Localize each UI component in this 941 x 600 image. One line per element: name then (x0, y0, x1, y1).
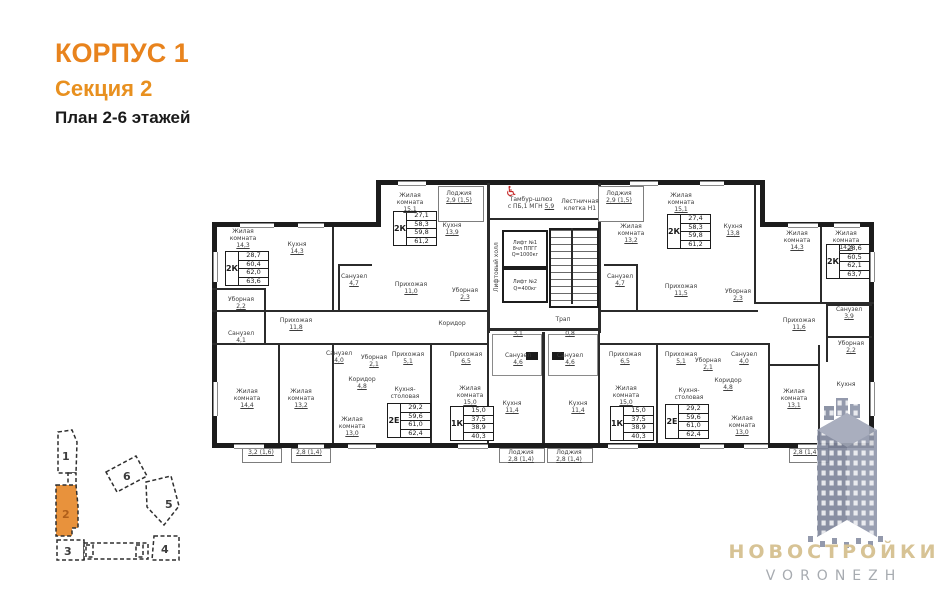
logo-building-icon (740, 398, 930, 548)
room-name: Санузел (720, 351, 768, 358)
room-name: Жилая комната (773, 230, 821, 244)
wall (604, 264, 638, 266)
minimap-section-3[interactable]: 3 (57, 540, 84, 560)
room-area: 14,3 (790, 244, 803, 251)
room-label: Жилая комната15,1 (657, 192, 705, 214)
minimap-section-number: 5 (165, 498, 173, 511)
room-name: Уборная (217, 296, 265, 303)
room-label: Коридор4,8 (338, 376, 386, 390)
room-name: Прихожая (601, 351, 649, 358)
room-area: 2,2 (236, 303, 246, 310)
minimap-connector (68, 473, 76, 486)
room-area: 2,2 (846, 347, 856, 354)
apartment-table: 2К 28,7 60,4 62,0 63,6 (225, 251, 269, 286)
room-label: Кухня13,9 (428, 222, 476, 236)
room-area: 15,0 (463, 399, 476, 406)
room-label: Санузел4,7 (596, 273, 644, 287)
room-name: Уборная (714, 288, 762, 295)
room-area: 11,4 (571, 407, 584, 414)
room-area: 4,7 (615, 280, 625, 287)
room-name: Кухня-столовая (381, 386, 429, 400)
wall (212, 288, 266, 290)
window (870, 252, 875, 282)
room-area: 5,1 (403, 358, 413, 365)
page: КОРПУС 1 Секция 2 План 2-6 этажей (0, 0, 941, 600)
room-area: 15,1 (674, 206, 687, 213)
elevator-2: Лифт №2 Q=400кг (502, 268, 548, 303)
wall (760, 180, 765, 227)
window (630, 181, 658, 186)
room-name: Санузел (546, 352, 594, 359)
room-area: 4,6 (565, 359, 575, 366)
minimap-section-1[interactable]: 1 (58, 430, 77, 473)
elevator-label: Q=1000кг (512, 252, 539, 258)
room-label: Санузел3,9 (825, 306, 873, 320)
room-area: 2,8 (1,4) (556, 456, 582, 463)
room-label: Коридор (428, 320, 476, 334)
window (608, 444, 638, 449)
room-label: Жилая комната14,3 (822, 230, 870, 252)
apartment-type: 2К (394, 212, 407, 245)
window (398, 181, 426, 186)
room-label: Лоджия2,9 (1,5) (595, 190, 643, 204)
drain-text: Трап (535, 316, 591, 323)
room-label: Прихожая5,1 (384, 351, 432, 365)
room-area: 4,0 (334, 357, 344, 364)
room-name: Кухня (488, 400, 536, 407)
room-area: 2,9 (1,5) (606, 197, 632, 204)
apartment-area: 40,3 (624, 433, 653, 441)
minimap-strip-core (136, 545, 143, 557)
staircase (549, 228, 599, 308)
apartment-area: 63,7 (840, 271, 869, 279)
room-label: Уборная2,3 (714, 288, 762, 302)
room-name: Кухня (709, 223, 757, 230)
room-name: Уборная (827, 340, 875, 347)
minimap-section-6[interactable]: 6 (106, 456, 147, 492)
apartment-area: 63,6 (239, 278, 268, 286)
room-label: Прихожая6,5 (442, 351, 490, 365)
minimap-section-number: 3 (64, 545, 72, 558)
room-area: 14,3 (839, 244, 852, 251)
apartment-table: 2К 27,4 58,3 59,8 61,2 (667, 214, 711, 249)
room-area: 14,3 (290, 248, 303, 255)
room-area: 14,3 (236, 242, 249, 249)
wall (376, 180, 381, 227)
wall (770, 364, 820, 366)
window (788, 223, 818, 228)
room-label: 3,2 (1,6) (237, 449, 285, 456)
apartment-table: 1К 15,0 37,5 38,9 40,3 (610, 406, 654, 441)
room-area: 3,1 (513, 330, 523, 337)
apartment-table: 2Е 29,2 59,6 61,0 62,4 (665, 404, 709, 439)
room-area: 4,0 (739, 358, 749, 365)
room-name: Санузел (825, 306, 873, 313)
room-name: Лоджия (595, 190, 643, 197)
room-area: 3,2 (1,6) (248, 449, 274, 456)
apartment-area: 61,2 (407, 238, 436, 246)
room-area: 2,9 (1,5) (446, 197, 472, 204)
room-label: Жилая комната15,0 (446, 385, 494, 407)
wall (490, 218, 600, 220)
room-label: 2,8 (1,4) (285, 449, 333, 456)
room-label: Жилая комната13,2 (277, 388, 325, 410)
room-label: Жилая комната14,3 (773, 230, 821, 252)
room-area: 4,7 (349, 280, 359, 287)
plan-subtitle: План 2-6 этажей (55, 108, 190, 128)
minimap-section-2[interactable]: 2 (56, 485, 78, 536)
apartment-area: 62,4 (401, 430, 430, 438)
wall (542, 332, 545, 443)
room-label: Жилая комната13,2 (607, 223, 655, 245)
wall (338, 264, 372, 266)
window (700, 444, 724, 449)
room-area: 13,0 (345, 430, 358, 437)
room-name: Жилая комната (386, 192, 434, 206)
wall (826, 336, 872, 338)
room-name: Кухня (273, 241, 321, 248)
room-name: Кухня (822, 381, 870, 388)
room-name: Лоджия (497, 449, 545, 456)
room-area: 15,0 (619, 399, 632, 406)
room-name: Лоджия (435, 190, 483, 197)
room-label: Санузел4,1 (217, 330, 265, 344)
room-name: Прихожая (384, 351, 432, 358)
room-area: 2,8 (1,4) (508, 456, 534, 463)
room-name: Жилая комната (602, 385, 650, 399)
window (700, 181, 724, 186)
tambour-label: Тамбур-шлюз с ПБ,1 МГН 5,9 (503, 196, 559, 210)
room-label: Лоджия2,8 (1,4) (545, 449, 593, 463)
window (213, 252, 218, 282)
room-name: Жилая комната (328, 416, 376, 430)
room-name: Жилая комната (223, 388, 271, 402)
room-area: 11,5 (674, 290, 687, 297)
room-label: Жилая комната15,1 (386, 192, 434, 214)
room-name: Прихожая (387, 281, 435, 288)
apartment-type: 2Е (666, 405, 679, 438)
room-area: 11,8 (289, 324, 302, 331)
room-label: Жилая комната13,0 (328, 416, 376, 438)
room-label: Кухня11,4 (554, 400, 602, 414)
room-area: 4,8 (357, 383, 367, 390)
room-name: Жилая комната (657, 192, 705, 206)
wall (332, 227, 334, 312)
room-area: 6,5 (620, 358, 630, 365)
room-area: 2,3 (460, 294, 470, 301)
room-area: 2,8 (1,4) (296, 449, 322, 456)
room-name: Санузел (217, 330, 265, 337)
window (458, 444, 488, 449)
apartment-table: 2Е 29,2 59,6 61,0 62,4 (387, 403, 431, 438)
room-label: Санузел4,7 (330, 273, 378, 287)
room-area: 13,2 (624, 237, 637, 244)
staircase-divider (571, 228, 573, 304)
room-label: Санузел4,6 (546, 352, 594, 366)
window (298, 223, 324, 228)
building-minimap: 1 2 3 6 5 4 (48, 428, 188, 573)
room-label: Жилая комната14,3 (219, 228, 267, 250)
building-title: КОРПУС 1 (55, 38, 189, 69)
stairwell-line2: клетка Н1 (552, 205, 608, 212)
room-name: Жилая комната (219, 228, 267, 242)
room-label: Прихожая11,0 (387, 281, 435, 295)
room-name: Прихожая (775, 317, 823, 324)
room-label: Прихожая11,5 (657, 283, 705, 297)
room-area: 2,1 (369, 361, 379, 368)
room-name: Прихожая (657, 283, 705, 290)
room-area: 3,9 (844, 313, 854, 320)
room-label: Кухня-столовая (665, 387, 713, 409)
room-area: 14,4 (240, 402, 253, 409)
apartment-type: 2Е (388, 404, 401, 437)
wall (754, 185, 756, 304)
tambour-line2: с ПБ,1 МГН 5,9 (503, 203, 559, 210)
room-label: Уборная2,2 (827, 340, 875, 354)
room-name: Санузел (596, 273, 644, 280)
lift-hall-label: Лифтовый холл (493, 242, 500, 292)
room-name: Прихожая (272, 317, 320, 324)
room-label: 0,8 (546, 330, 594, 337)
room-label: Прихожая11,6 (775, 317, 823, 331)
window (213, 382, 218, 416)
section-title: Секция 2 (55, 76, 152, 102)
elevator-1: Лифт №1 8чл ППГГ Q=1000кг (502, 230, 548, 268)
room-name: Жилая комната (822, 230, 870, 244)
apartment-type: 2К (226, 252, 239, 285)
tambour-line1: Тамбур-шлюз (503, 196, 559, 203)
room-name: Санузел (494, 352, 542, 359)
room-area: 13,9 (445, 229, 458, 236)
window (834, 223, 860, 228)
room-area: 0,8 (565, 330, 575, 337)
room-label: Жилая комната15,0 (602, 385, 650, 407)
room-label: Санузел4,6 (494, 352, 542, 366)
room-name: Кухня (428, 222, 476, 229)
minimap-section-number: 4 (161, 543, 169, 556)
drain-label: Трап (535, 316, 591, 323)
room-area: 11,4 (505, 407, 518, 414)
wall (212, 222, 380, 227)
apartment-area: 40,3 (464, 433, 493, 441)
room-name: Коридор (338, 376, 386, 383)
wall (600, 343, 770, 345)
room-name: Коридор (704, 377, 752, 384)
room-area: 2,1 (703, 364, 713, 371)
apartment-type: 1К (451, 407, 464, 440)
room-name: Коридор (428, 320, 476, 327)
room-label: Лоджия2,8 (1,4) (497, 449, 545, 463)
room-area: 4,8 (723, 384, 733, 391)
room-area: 13,2 (294, 402, 307, 409)
minimap-section-number: 1 (62, 450, 70, 463)
room-name: Кухня-столовая (665, 387, 713, 401)
apartment-type: 2К (668, 215, 681, 248)
minimap-section-number: 6 (123, 470, 131, 483)
room-label: 3,1 (494, 330, 542, 337)
room-label: Кухня-столовая (381, 386, 429, 408)
room-area: 11,0 (404, 288, 417, 295)
room-area: 13,8 (726, 230, 739, 237)
room-label: Прихожая11,8 (272, 317, 320, 331)
window (348, 444, 376, 449)
room-area: 4,6 (513, 359, 523, 366)
room-area: 2,3 (733, 295, 743, 302)
wall (598, 310, 758, 312)
apartment-area: 62,4 (679, 431, 708, 439)
wall (598, 330, 600, 443)
minimap-section-number: 2 (62, 508, 70, 521)
room-name: Жилая комната (607, 223, 655, 237)
minimap-section-5[interactable]: 5 (146, 476, 179, 525)
room-label: Кухня13,8 (709, 223, 757, 237)
room-name: Жилая комната (277, 388, 325, 402)
room-name: Прихожая (442, 351, 490, 358)
minimap-strip-core (86, 545, 93, 557)
room-label: Уборная2,2 (217, 296, 265, 310)
room-area: 4,1 (236, 337, 246, 344)
minimap-section-4[interactable]: 4 (152, 536, 179, 560)
elevator-label: Q=400кг (513, 286, 536, 292)
room-name: Санузел (330, 273, 378, 280)
room-area: 11,6 (792, 324, 805, 331)
apartment-area: 61,2 (681, 241, 710, 249)
apartment-type: 1К (611, 407, 624, 440)
room-label: Кухня11,4 (488, 400, 536, 414)
room-name: Уборная (441, 287, 489, 294)
room-label: Прихожая6,5 (601, 351, 649, 365)
room-label: Кухня14,3 (273, 241, 321, 255)
room-area: 15,1 (403, 206, 416, 213)
logo-title: НОВОСТРОЙКИ (728, 541, 940, 563)
room-label: Жилая комната14,4 (223, 388, 271, 410)
room-label: Уборная2,3 (441, 287, 489, 301)
room-name: Кухня (554, 400, 602, 407)
logo-subtitle: VORONEZH (728, 568, 940, 584)
room-area: 6,5 (461, 358, 471, 365)
room-name: Лоджия (545, 449, 593, 456)
room-label: Кухня (822, 381, 870, 395)
room-label: Лоджия2,9 (1,5) (435, 190, 483, 204)
room-name: Жилая комната (446, 385, 494, 399)
room-label: Санузел4,0 (720, 351, 768, 365)
